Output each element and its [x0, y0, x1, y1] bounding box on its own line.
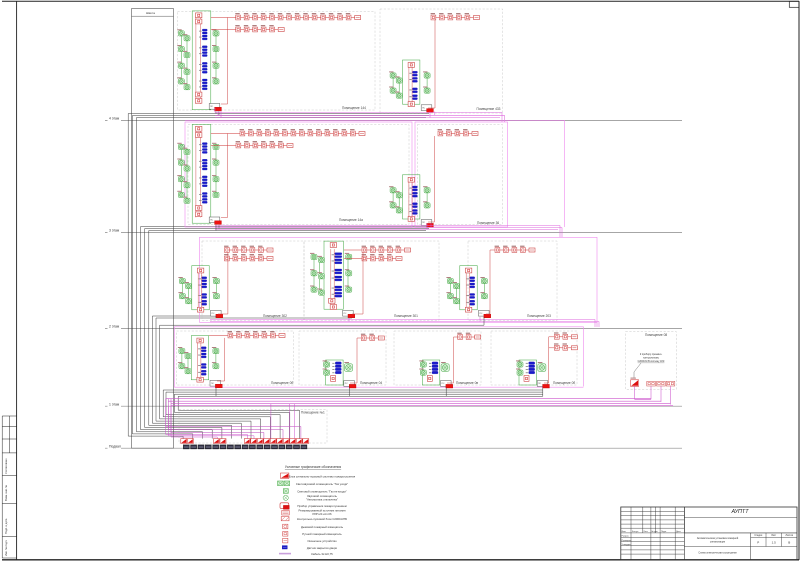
svg-text:Светозвуковой оповещатель "Газ: Светозвуковой оповещатель "Газ уходи": [296, 482, 348, 486]
svg-text:"Автоматика отключена": "Автоматика отключена": [306, 497, 338, 501]
svg-text:Взам. инв. №: Взам. инв. №: [4, 485, 8, 501]
svg-text:1.5: 1.5: [772, 541, 777, 545]
svg-text:РИП-24 исп.06: РИП-24 исп.06: [312, 512, 332, 516]
svg-text:Помещение 302: Помещение 302: [263, 314, 287, 318]
svg-text:Согласовано: Согласовано: [4, 458, 8, 474]
svg-text:Подп.: Подп.: [661, 531, 667, 533]
svg-text:Помещение №1: Помещение №1: [301, 411, 325, 415]
svg-text:4 этаж: 4 этаж: [109, 117, 120, 121]
svg-text:Проверил: Проверил: [622, 540, 632, 542]
svg-text:АУПТТ: АУПТТ: [730, 509, 749, 515]
svg-text:Изм.: Изм.: [622, 531, 627, 533]
svg-text:Лист: Лист: [643, 531, 648, 533]
svg-text:Помещение 433: Помещение 433: [477, 107, 501, 111]
svg-text:Датчик закрытия двери: Датчик закрытия двери: [307, 546, 338, 550]
svg-text:Помещение 301: Помещение 301: [394, 314, 418, 318]
svg-text:Кабель 3x1x0,75: Кабель 3x1x0,75: [311, 552, 333, 556]
svg-text:Схема электрическая структурна: Схема электрическая структурная: [698, 552, 737, 555]
svg-text:Ручной пожарный извещатель: Ручной пожарный извещатель: [302, 532, 342, 536]
svg-text:Помещение 0в: Помещение 0в: [456, 381, 478, 385]
svg-text:Помещение 0б: Помещение 0б: [271, 381, 293, 385]
svg-text:1 этаж: 1 этаж: [109, 402, 120, 406]
svg-text:Блок сигнально-пусковой систем: Блок сигнально-пусковой системы пожароту…: [289, 475, 356, 479]
svg-text:Помещение 203: Помещение 203: [527, 314, 551, 318]
svg-text:Помещение 0б: Помещение 0б: [553, 381, 575, 385]
svg-text:Условные графические обозначен: Условные графические обозначения: [285, 465, 341, 469]
svg-text:Подп. и дата: Подп. и дата: [4, 518, 8, 534]
svg-text:Утвердил: Утвердил: [622, 544, 632, 546]
svg-text:сигнализации: сигнализации: [710, 540, 726, 543]
svg-text:Контрольно-пусковой блок С2000: Контрольно-пусковой блок С2000-КПБ: [297, 517, 347, 521]
svg-text:Световой оповещатель "Газ не в: Световой оповещатель "Газ не входи": [297, 490, 346, 494]
svg-text:Инв. № подл.: Инв. № подл.: [4, 540, 8, 556]
svg-text:Подвал: Подвал: [109, 444, 121, 448]
svg-text:Оконечное устройство: Оконечное устройство: [307, 539, 337, 543]
svg-text:Прибор управления пожаротушени: Прибор управления пожаротушением: [297, 504, 346, 508]
svg-text:Помещение 36: Помещение 36: [477, 221, 499, 225]
svg-text:3 этаж: 3 этаж: [109, 229, 120, 233]
svg-text:Листов: Листов: [785, 535, 793, 537]
svg-text:Шахта: Шахта: [146, 11, 155, 15]
svg-text:Разраб.: Разраб.: [622, 536, 630, 538]
svg-text:Помещение 04: Помещение 04: [360, 381, 382, 385]
svg-text:С2000-М В систему АУК: С2000-М В систему АУК: [638, 360, 665, 363]
svg-text:№ док.: № док.: [651, 530, 658, 533]
svg-text:2 этаж: 2 этаж: [109, 325, 120, 329]
svg-text:Стадия: Стадия: [754, 535, 763, 537]
svg-text:Помещение 14а: Помещение 14а: [339, 218, 363, 222]
svg-text:Р: Р: [757, 541, 759, 545]
svg-text:Кол.уч.: Кол.уч.: [632, 531, 639, 533]
svg-text:Дымовой пожарный извещатель: Дымовой пожарный извещатель: [301, 525, 344, 529]
svg-text:В: В: [788, 541, 790, 545]
svg-text:Помещение 144: Помещение 144: [342, 106, 366, 110]
svg-text:Помещение 08: Помещение 08: [645, 333, 667, 337]
